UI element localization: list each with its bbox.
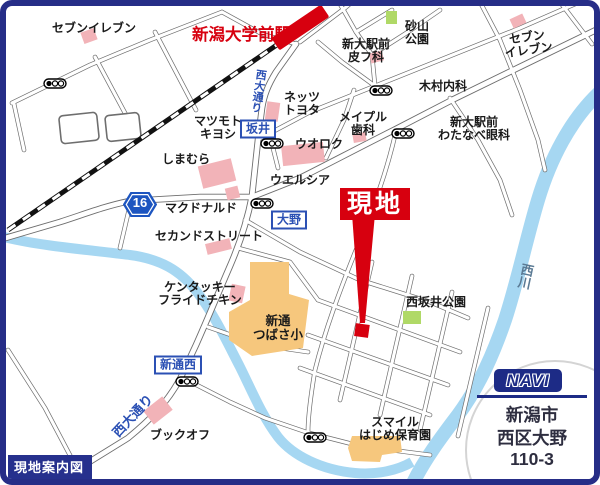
poi-label-welcia: ウエルシア — [270, 174, 330, 187]
poi-label-seven-eleven-nw: セブンイレブン — [52, 22, 136, 35]
bldg-nishi-sakai-park — [403, 311, 421, 324]
traffic-light-icon — [369, 83, 393, 101]
poi-label-watanabe-ganka: 新大駅前わたなべ眼科 — [438, 116, 510, 143]
poi-label-second-street: セカンドストリート — [155, 230, 263, 243]
poi-label-nishi-sakai-park: 西坂井公園 — [406, 296, 466, 309]
bldg-sunayama-park — [386, 11, 397, 24]
poi-label-netz-toyota: ネッツトヨタ — [284, 91, 320, 118]
intersection-badge-shindori-nishi: 新通西 — [154, 356, 202, 375]
traffic-light-icon — [260, 136, 284, 154]
navi-divider — [477, 395, 587, 398]
traffic-light-icon — [250, 196, 274, 214]
map-frame: 新潟大学前駅 現地 16 セブンイレブン砂山公園新大駅前皮フ科セブンイレブン木村… — [0, 0, 600, 485]
station-name-label: 新潟大学前駅 — [192, 21, 291, 45]
address-line-number: 110-3 — [467, 449, 597, 470]
site-label: 現地 — [340, 188, 410, 220]
poi-label-mcdonalds: マクドナルド — [165, 202, 237, 215]
address-line-ward: 西区大野 — [467, 425, 597, 450]
poi-label-shimamura: しまむら — [162, 153, 210, 166]
poi-label-book-off: ブックオフ — [150, 429, 210, 442]
poi-label-kimura-naika: 木村内科 — [419, 80, 467, 93]
traffic-light-icon — [391, 126, 415, 144]
poi-label-smile-hoikuen: スマイルはじめ保育園 — [359, 416, 431, 443]
map-title-badge: 現地案内図 — [8, 455, 92, 479]
navi-logo: NAVI — [494, 369, 562, 392]
route-shield-number: 16 — [123, 195, 157, 210]
traffic-light-icon — [175, 374, 199, 392]
poi-label-kfc: ケンタッキーフライドチキン — [158, 281, 242, 308]
city-blocks — [59, 112, 142, 144]
poi-label-uoroku: ウオロク — [295, 138, 343, 151]
poi-label-shindai-hifuka: 新大駅前皮フ科 — [342, 38, 390, 65]
address-line-city: 新潟市 — [467, 402, 597, 427]
traffic-light-icon — [43, 76, 67, 94]
poi-label-maple-dental: メイプル歯科 — [339, 111, 387, 138]
poi-label-sunayama-park: 砂山公園 — [405, 20, 429, 47]
traffic-light-icon — [303, 430, 327, 448]
route-16-shield: 16 — [123, 192, 157, 222]
site-marker — [354, 323, 370, 338]
map-canvas: 新潟大学前駅 現地 16 セブンイレブン砂山公園新大駅前皮フ科セブンイレブン木村… — [6, 6, 594, 479]
guide-map: 新潟大学前駅 現地 16 セブンイレブン砂山公園新大駅前皮フ科セブンイレブン木村… — [0, 0, 600, 485]
poi-label-tsubasa-elementary: 新通つばさ小 — [253, 314, 303, 342]
poi-label-matsumoto-kiyoshi: マツモトキヨシ — [194, 115, 242, 142]
intersection-badge-ono: 大野 — [271, 211, 307, 230]
